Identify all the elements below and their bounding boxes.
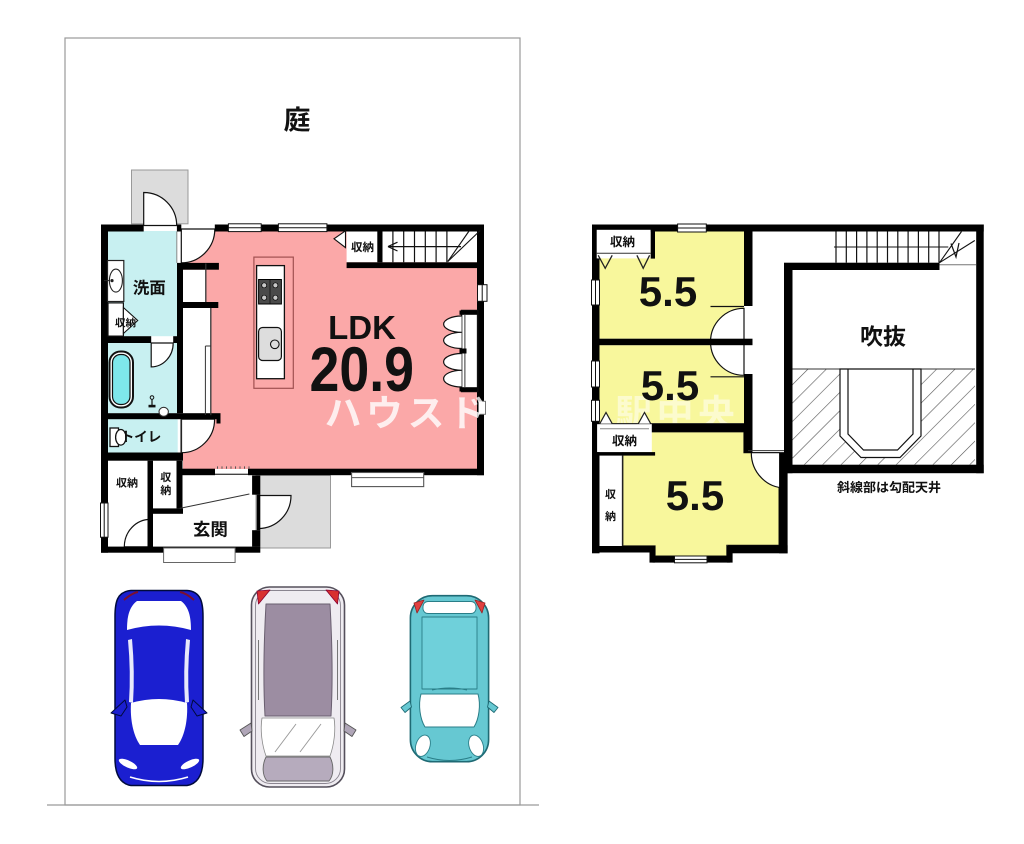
svg-text:5.5: 5.5 (641, 362, 699, 409)
svg-text:5.5: 5.5 (666, 472, 724, 519)
svg-text:5.5: 5.5 (639, 268, 697, 315)
svg-text:20.9: 20.9 (310, 335, 415, 405)
